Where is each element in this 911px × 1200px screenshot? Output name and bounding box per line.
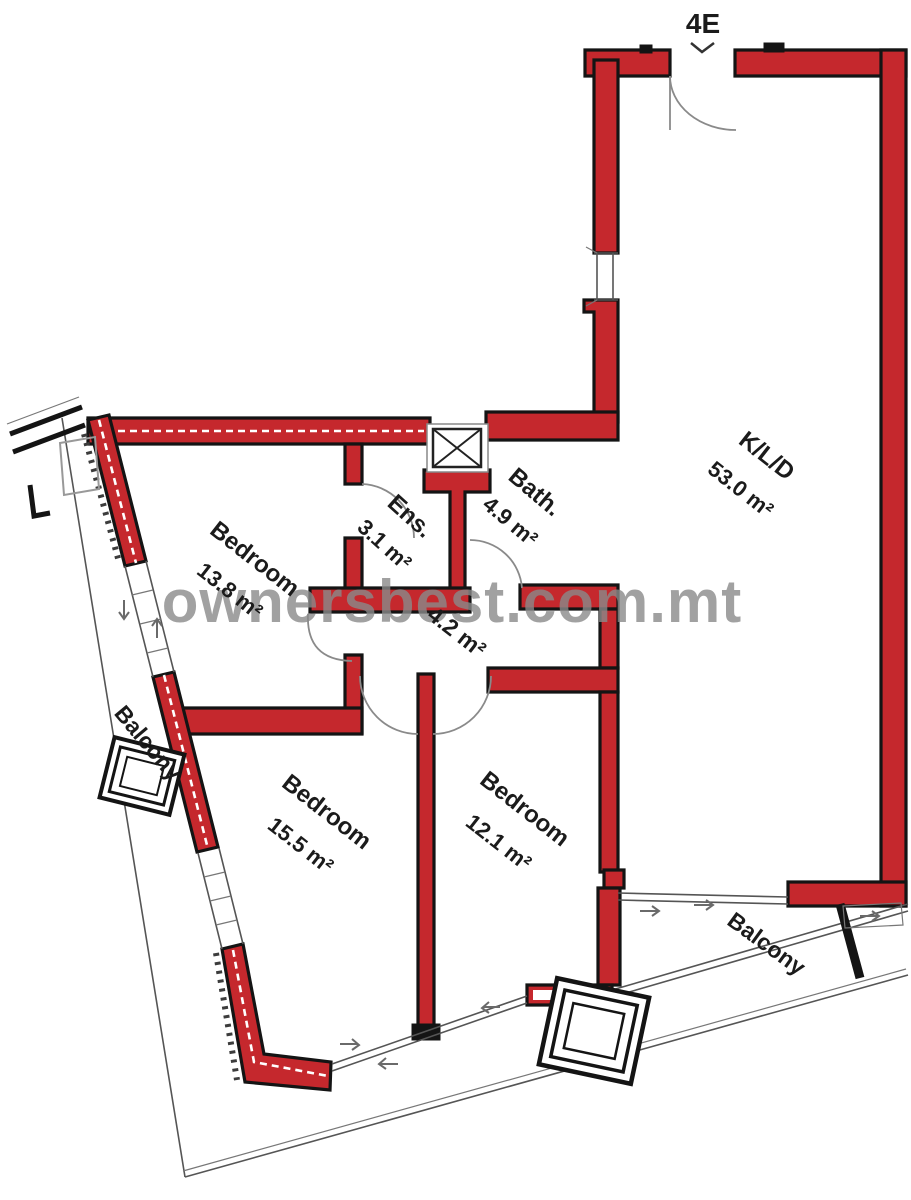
wall-corridor-lower	[584, 300, 618, 422]
wall-bed3-right-lower	[598, 888, 620, 985]
doors	[308, 76, 736, 734]
window-corridor-ticks	[586, 247, 597, 306]
entry-door-arc	[670, 76, 736, 130]
wall-bed3-right	[600, 692, 618, 872]
wall-bed-divider-horizontal	[183, 708, 362, 734]
column-bottom-balcony	[539, 978, 649, 1084]
wall-corridor-upper	[594, 60, 618, 253]
room-label-bedroom-3: Bedroom 12.1 m²	[450, 766, 575, 884]
wall-bed2-corner-L	[222, 944, 331, 1090]
wall-notch-right	[764, 43, 784, 52]
wall-bed1-top	[88, 418, 430, 444]
arrow-right-1	[340, 1039, 359, 1050]
lift-shaft	[427, 424, 488, 472]
room-label-bedroom-2: Bedroom 15.5 m²	[252, 769, 377, 887]
room-label-kld: K/L/D 53.0 m²	[703, 422, 805, 522]
unit-label: 4E	[686, 8, 720, 39]
balcony-right-divider-wall	[840, 904, 860, 978]
wall-kld-bottom	[788, 882, 906, 906]
balcony-left-corner-mark	[30, 485, 50, 516]
chevron-down-icon	[691, 43, 714, 52]
floor-plan-page: ownersbest.com.mt 4E K/L/D 53.0 m² Bath.…	[0, 0, 911, 1200]
floor-plan-svg: ownersbest.com.mt 4E K/L/D 53.0 m² Bath.…	[0, 0, 911, 1200]
balcony-left-structure	[7, 397, 99, 516]
wall-bed3-top	[488, 668, 618, 692]
wall-bed-divider-vertical	[418, 674, 434, 1026]
bed2-door-arc	[360, 676, 418, 734]
wall-right	[881, 50, 906, 906]
arrow-down	[119, 600, 129, 619]
slider-kld	[618, 893, 788, 904]
wall-ens-left-upper	[345, 444, 362, 484]
wall-bed3-right-jog	[604, 870, 624, 888]
arrow-left-1	[379, 1058, 398, 1069]
room-label-ens: Ens. 3.1 m²	[353, 485, 443, 575]
bed3-door-arc	[433, 676, 491, 734]
wall-bed3-bottom-gap	[533, 990, 553, 1000]
arrow-up	[152, 619, 162, 638]
wall-bath-top	[486, 412, 618, 440]
window-corridor	[594, 253, 618, 300]
arrow-right-2	[640, 906, 659, 916]
wall-notch-left	[640, 45, 652, 53]
